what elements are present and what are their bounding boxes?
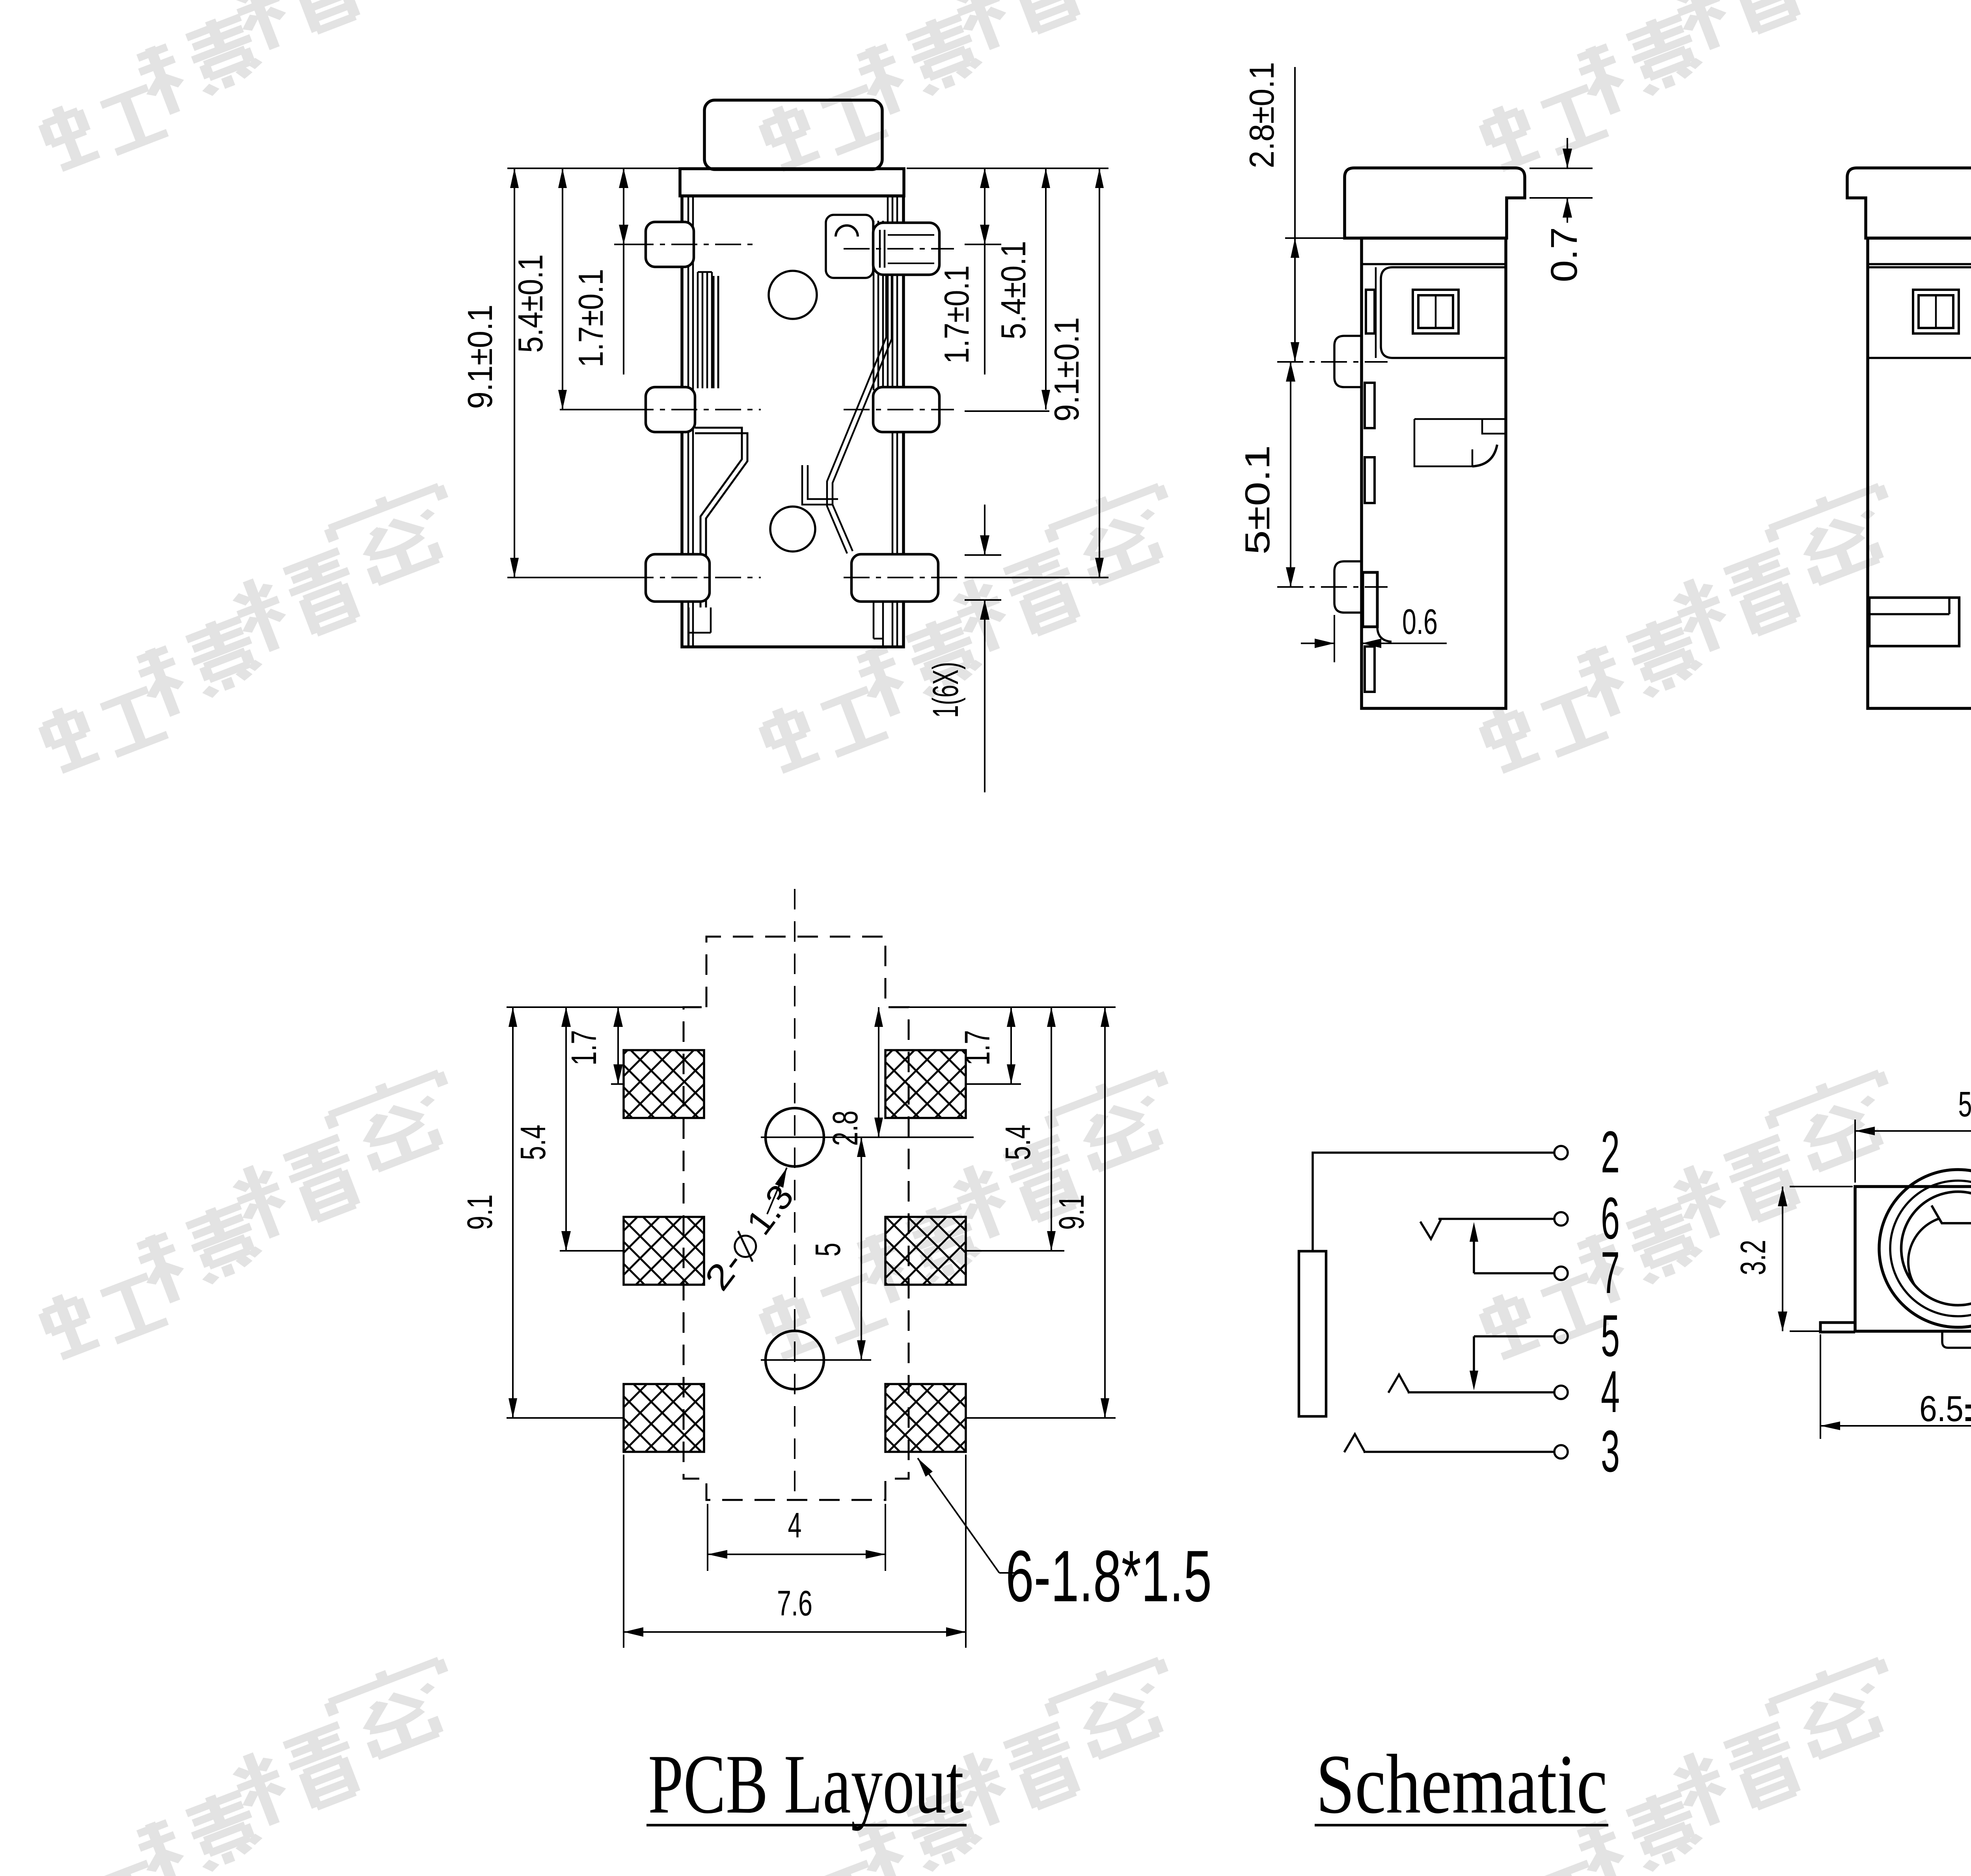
svg-text:2.8: 2.8 bbox=[826, 1110, 865, 1146]
svg-text:Schematic: Schematic bbox=[1316, 1737, 1608, 1831]
svg-text:5.4: 5.4 bbox=[999, 1125, 1038, 1160]
svg-text:9.1: 9.1 bbox=[1052, 1194, 1092, 1230]
svg-text:3.2: 3.2 bbox=[1734, 1240, 1773, 1275]
svg-text:0.6: 0.6 bbox=[1402, 602, 1438, 642]
svg-text:4: 4 bbox=[1601, 1358, 1620, 1425]
svg-text:5: 5 bbox=[1958, 1085, 1971, 1124]
svg-text:6.5: 6.5 bbox=[1919, 1389, 1964, 1429]
svg-text:2: 2 bbox=[1601, 1119, 1620, 1185]
svg-text:1(6X): 1(6X) bbox=[926, 662, 966, 718]
svg-text:5.4±0.1: 5.4±0.1 bbox=[994, 241, 1033, 339]
svg-text:4: 4 bbox=[788, 1506, 802, 1545]
svg-text:5±0.1: 5±0.1 bbox=[1238, 445, 1277, 555]
svg-text:7: 7 bbox=[1601, 1239, 1620, 1306]
svg-text:2.8±0.1: 2.8±0.1 bbox=[1242, 62, 1281, 168]
svg-text:6-1.8*1.5: 6-1.8*1.5 bbox=[1006, 1536, 1212, 1617]
svg-text:1.7: 1.7 bbox=[564, 1030, 604, 1066]
svg-text:9.1±0.1: 9.1±0.1 bbox=[1047, 317, 1086, 422]
svg-text:0.7: 0.7 bbox=[1543, 227, 1585, 282]
svg-text:3: 3 bbox=[1601, 1418, 1620, 1484]
svg-text:9.1±0.1: 9.1±0.1 bbox=[460, 305, 499, 409]
svg-text:PCB Layout: PCB Layout bbox=[648, 1737, 964, 1831]
svg-text:1.7±0.1: 1.7±0.1 bbox=[571, 269, 610, 367]
svg-text:1.7±0.1: 1.7±0.1 bbox=[937, 265, 976, 364]
svg-text:9.1: 9.1 bbox=[460, 1194, 500, 1230]
svg-text:±0.1: ±0.1 bbox=[1965, 1389, 1971, 1429]
svg-text:5.4: 5.4 bbox=[514, 1125, 553, 1160]
svg-text:5.4±0.1: 5.4±0.1 bbox=[511, 254, 550, 353]
svg-text:7.6: 7.6 bbox=[777, 1584, 812, 1623]
svg-text:5: 5 bbox=[809, 1243, 848, 1257]
svg-text:1.7: 1.7 bbox=[958, 1030, 997, 1066]
